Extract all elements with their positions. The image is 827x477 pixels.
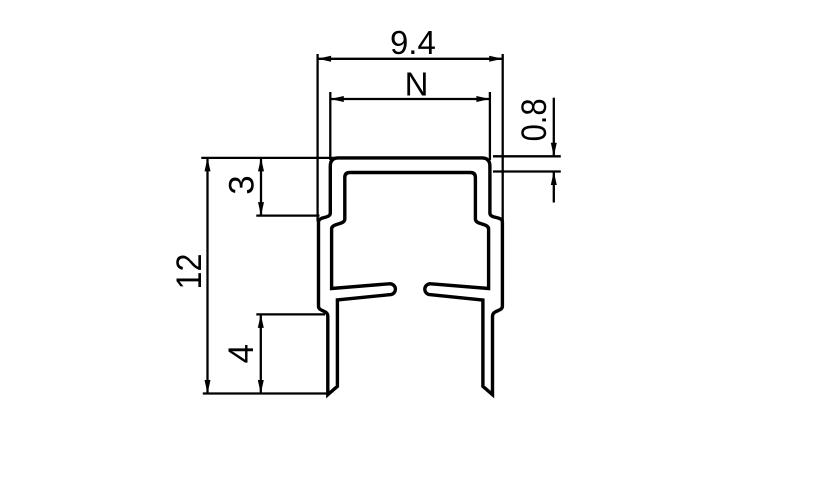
- svg-text:N: N: [405, 66, 429, 103]
- svg-text:3: 3: [222, 175, 261, 194]
- svg-text:9.4: 9.4: [390, 24, 436, 61]
- svg-text:0.8: 0.8: [515, 98, 554, 141]
- svg-text:12: 12: [170, 254, 209, 290]
- svg-text:4: 4: [222, 344, 261, 363]
